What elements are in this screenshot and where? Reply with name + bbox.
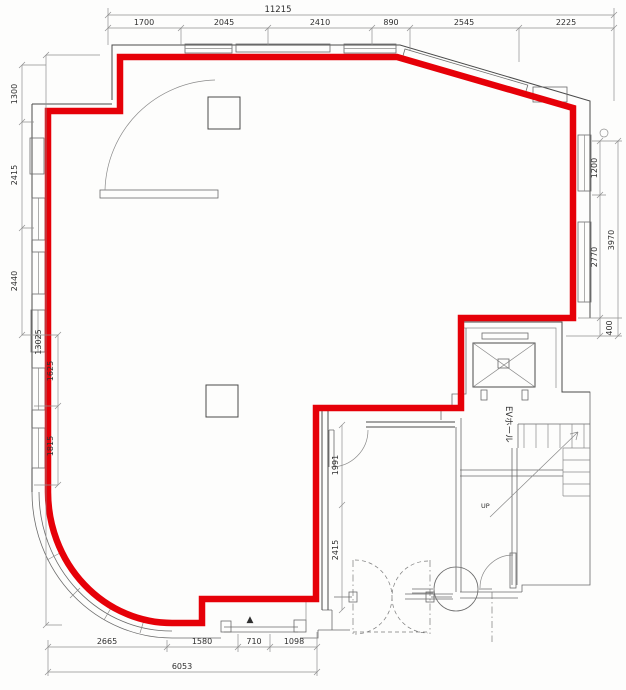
dim-bottom-seg-3: 1098	[284, 637, 304, 646]
entrance-marker-icon: ▲	[247, 615, 254, 625]
dim-right-total: 3970	[607, 230, 616, 250]
dim-interior-0: 1991	[331, 455, 340, 475]
floor-plan-page: EVホール UP ▲	[0, 0, 626, 690]
dim-top-seg-5: 2225	[556, 18, 576, 27]
dim-top-total: 11215	[264, 5, 291, 15]
dim-bottom-total: 6053	[172, 662, 192, 671]
dim-top-seg-3: 890	[383, 18, 398, 27]
floor-plan-canvas: EVホール UP ▲	[0, 0, 626, 690]
dim-bottom-seg-1: 1580	[192, 637, 212, 646]
dim-interior-1: 2415	[331, 540, 340, 560]
dim-left-seg-4: 1815	[46, 436, 55, 456]
dim-top-seg-2: 2410	[310, 18, 330, 27]
ev-hall-label: EVホール	[503, 406, 513, 443]
dim-top-seg-4: 2545	[454, 18, 474, 27]
dim-top-seg-0: 1700	[134, 18, 154, 27]
dim-right-seg-1: 2770	[590, 247, 599, 267]
dim-left-seg-2: 2440	[10, 271, 19, 291]
dim-left-seg-0: 1300	[10, 84, 19, 104]
dim-left-total: 13025	[34, 329, 43, 354]
up-label: UP	[481, 502, 490, 510]
dim-left-seg-3: 1625	[46, 361, 55, 381]
dim-left-seg-1: 2415	[10, 165, 19, 185]
dim-right-seg-0: 1200	[590, 158, 599, 178]
dim-right-seg-2: 400	[605, 320, 614, 335]
dim-top-seg-1: 2045	[214, 18, 234, 27]
dim-bottom-seg-2: 710	[246, 637, 261, 646]
dim-bottom-seg-0: 2665	[97, 637, 117, 646]
